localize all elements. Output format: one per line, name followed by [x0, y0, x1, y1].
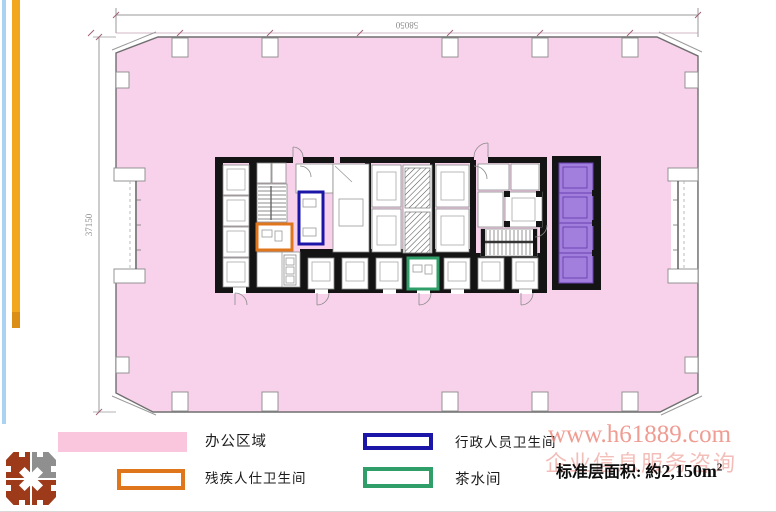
room-pantry: [408, 258, 438, 289]
legend-swatch-admin-wc: [363, 433, 433, 450]
stair-b: [481, 229, 537, 256]
area-sup: 2: [717, 462, 723, 474]
toilet-stalls: [403, 165, 432, 253]
lift-bank-left: [223, 165, 249, 287]
standard-floor-area-note: 标准层面积: 約2,150m2: [556, 458, 722, 482]
legend-label-admin-wc: 行政人员卫生间: [455, 431, 557, 451]
area-label: 标准层面积: 約: [556, 464, 661, 481]
lift-bank-purple: [552, 156, 601, 290]
room-disabled-wc: [257, 224, 292, 250]
facade-recess-right: [668, 168, 698, 283]
area-value: 2,150m: [661, 461, 717, 481]
legend-swatch-disabled-wc: [117, 469, 185, 490]
watermark-url: www.h61889.com: [548, 421, 731, 449]
room-admin-wc: [299, 192, 323, 244]
dim-top-label: 58050: [395, 20, 418, 30]
legend-swatch-pantry: [363, 467, 433, 488]
dim-left-label: 37150: [84, 213, 94, 236]
legend-label-disabled-wc: 残疾人仕卫生间: [205, 467, 307, 487]
legend-label-office: 办公区域: [205, 430, 267, 451]
slide-canvas: 58050 37150: [0, 0, 776, 512]
legend-swatch-office: [58, 432, 187, 452]
legend-label-pantry: 茶水间: [455, 468, 502, 489]
company-logo: [6, 452, 56, 505]
stair-a: [257, 163, 287, 222]
